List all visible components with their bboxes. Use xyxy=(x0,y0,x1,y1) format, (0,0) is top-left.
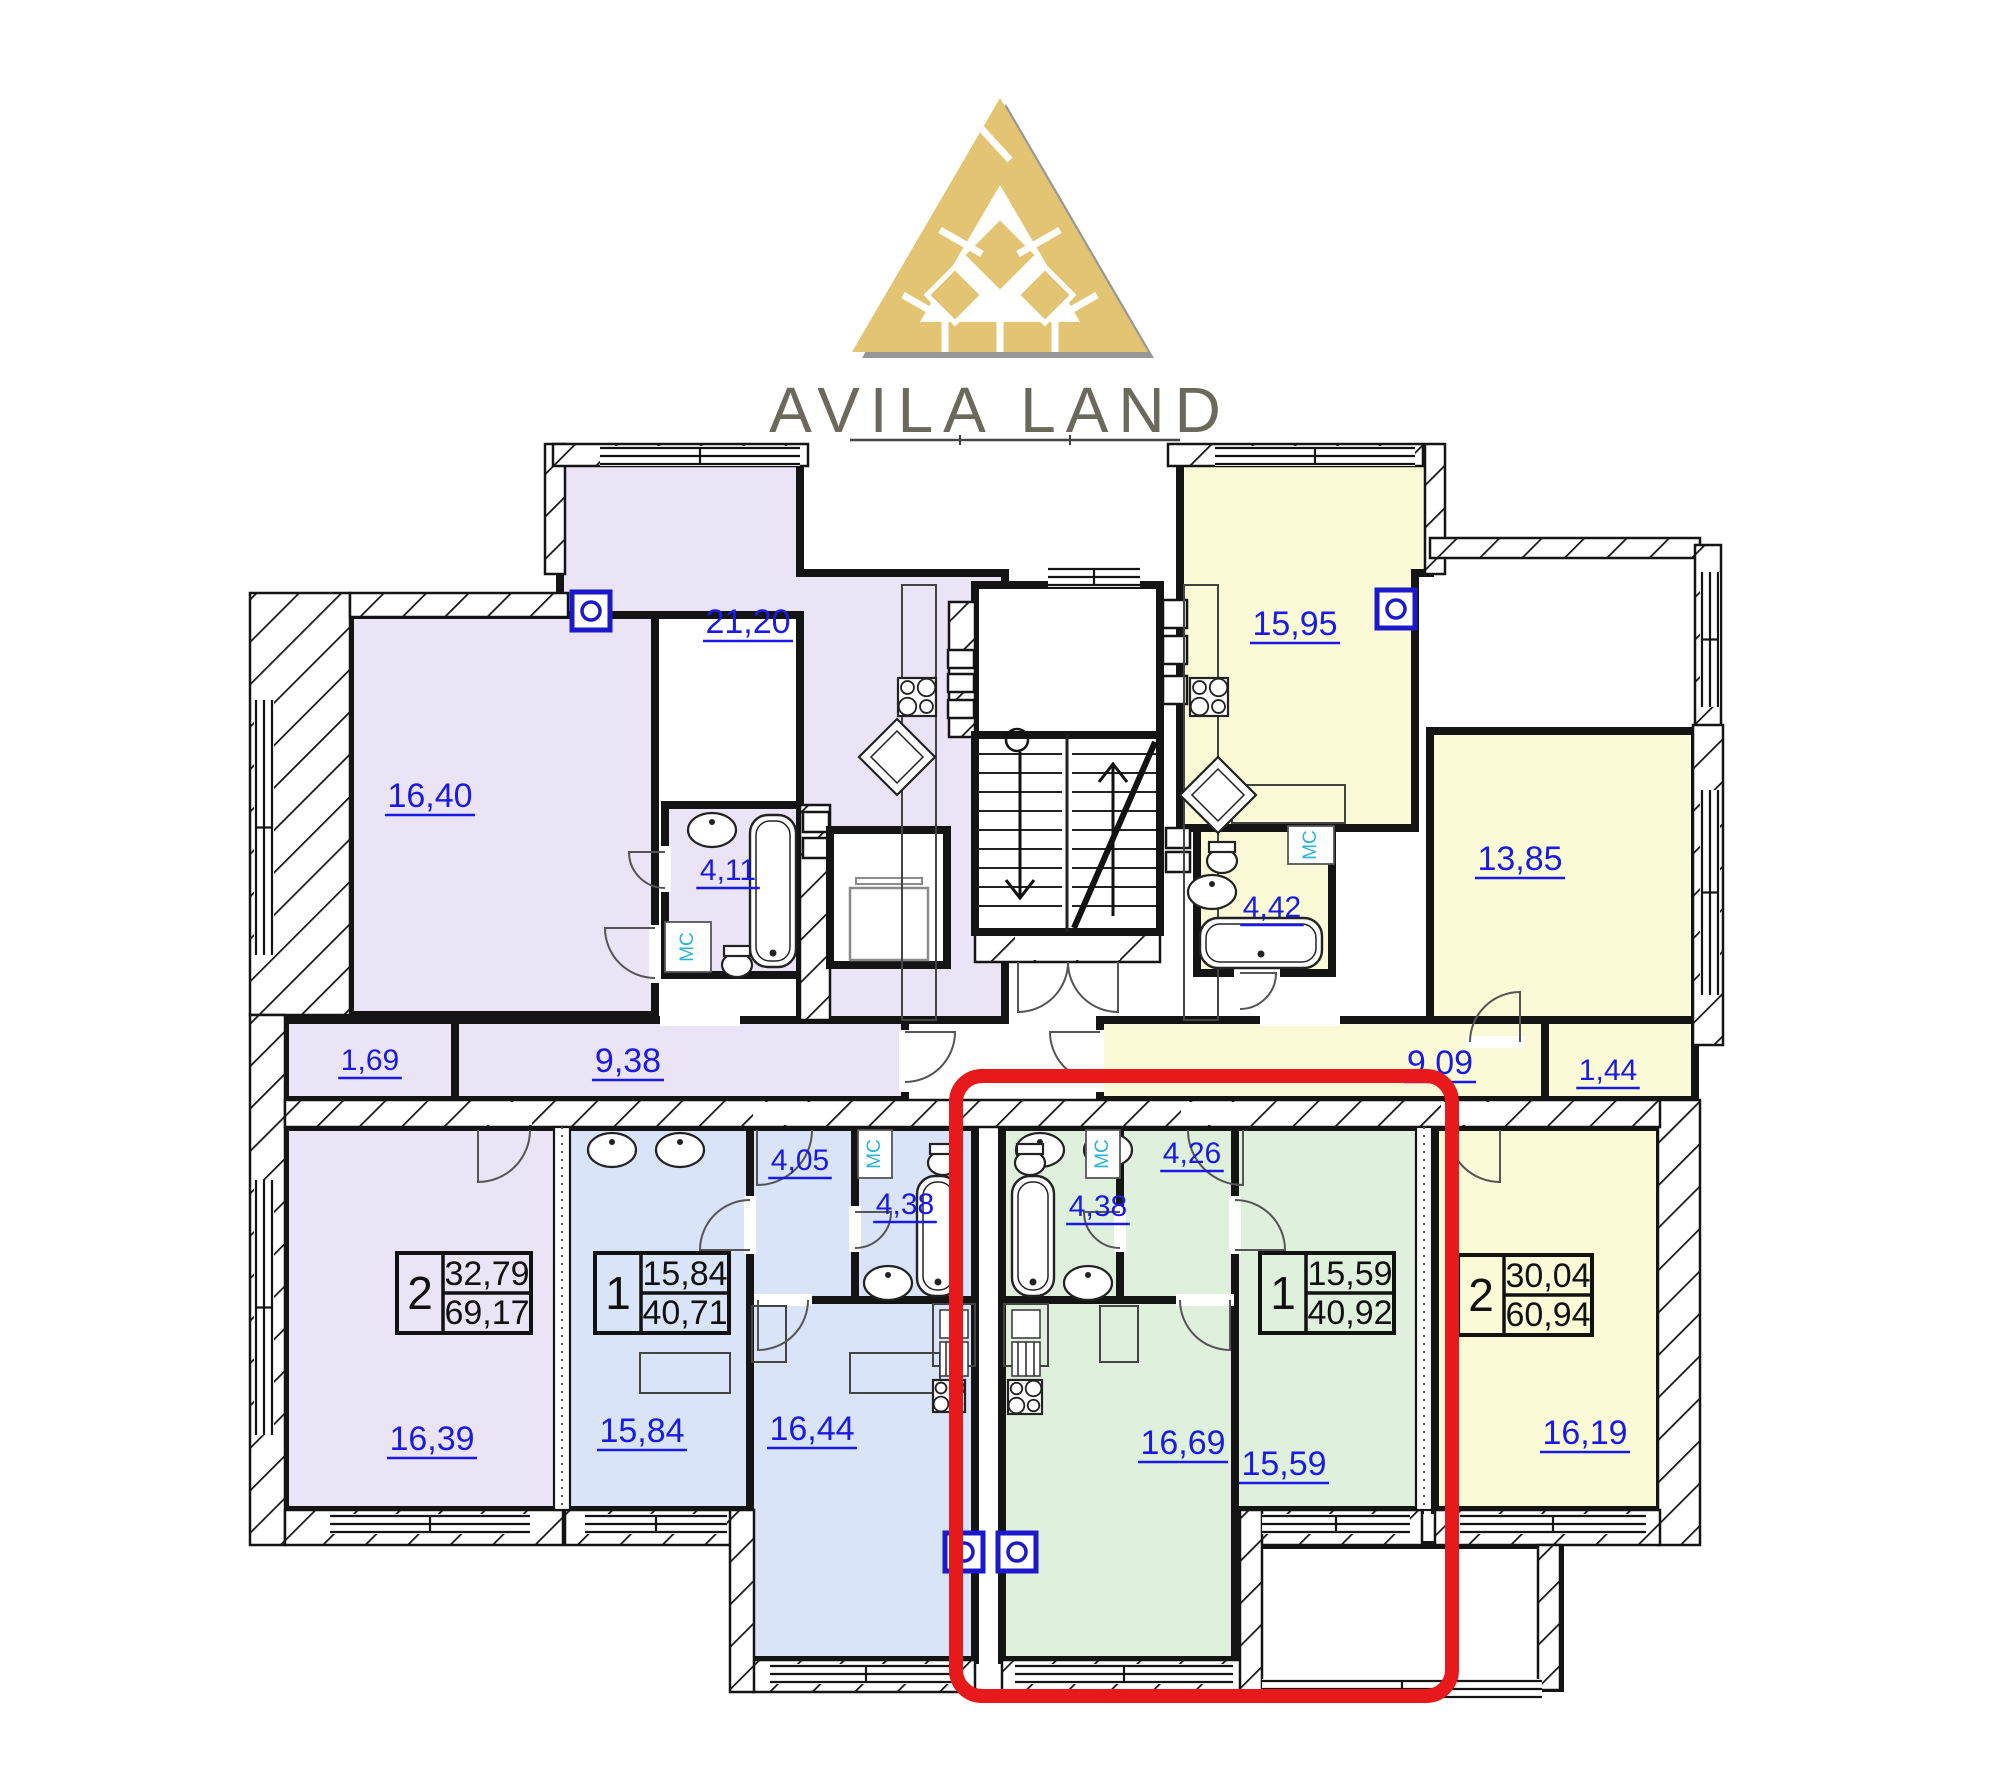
sink-icon xyxy=(656,1133,704,1167)
window xyxy=(1700,572,1720,707)
area-label: 4,38 xyxy=(873,1188,937,1222)
living-area: 32,79 xyxy=(444,1255,529,1293)
total-area: 69,17 xyxy=(444,1294,529,1332)
wall-hatched xyxy=(1430,538,1700,558)
door-gap xyxy=(1015,934,1120,960)
window xyxy=(1460,1514,1646,1534)
area-label-text: 16,44 xyxy=(769,1410,854,1448)
area-label-text: 4,05 xyxy=(771,1144,829,1177)
duct-shaft xyxy=(1166,828,1190,848)
area-label-text: 4,42 xyxy=(1243,891,1301,924)
total-area: 60,94 xyxy=(1505,1296,1590,1334)
room-count: 2 xyxy=(1468,1269,1494,1321)
brand-title: AVILA LAND xyxy=(769,374,1231,446)
party-wall-dotted xyxy=(554,1127,570,1510)
door-gap xyxy=(472,1102,532,1125)
sink-icon xyxy=(864,1266,912,1300)
window xyxy=(330,1514,530,1534)
area-label-text: 13,85 xyxy=(1477,840,1562,878)
area-label-text: 15,95 xyxy=(1252,605,1337,643)
wall-hatched xyxy=(1658,1100,1700,1545)
wall-hatched xyxy=(350,593,568,617)
area-label: 1,44 xyxy=(1576,1054,1640,1088)
door-gap xyxy=(649,925,661,983)
door-gap xyxy=(1260,1012,1340,1026)
toilet-icon xyxy=(1015,1144,1045,1175)
vent-box xyxy=(998,1533,1036,1571)
area-label: 21,20 xyxy=(703,603,793,641)
duct-shaft xyxy=(948,650,974,668)
area-label-text: 15,59 xyxy=(1241,1445,1326,1483)
door-gap xyxy=(1181,1102,1243,1125)
window xyxy=(1215,446,1415,466)
floor-plan: AVILA LAND МСМСМСМС21,2016,404,111,699,3… xyxy=(0,0,2000,1783)
room-count: 1 xyxy=(1270,1267,1296,1319)
living-area: 15,84 xyxy=(642,1255,727,1293)
sink-icon xyxy=(588,1133,636,1167)
washing-machine-label: МС xyxy=(864,1139,885,1169)
living-area: 30,04 xyxy=(1505,1257,1590,1295)
avila-logo-icon xyxy=(852,98,1154,358)
area-label: 13,85 xyxy=(1475,840,1565,878)
window xyxy=(770,1664,962,1684)
party-wall-dotted xyxy=(1416,1127,1432,1510)
washing-machine-box: МС xyxy=(1288,826,1334,864)
bathtub-icon xyxy=(750,815,796,967)
total-area: 40,92 xyxy=(1307,1294,1392,1332)
area-label-text: 16,40 xyxy=(387,777,472,815)
duct-shaft xyxy=(948,700,974,718)
area-label: 4,38 xyxy=(1066,1190,1130,1224)
area-label: 4,05 xyxy=(768,1144,832,1178)
area-label-text: 4,26 xyxy=(1163,1137,1221,1170)
elevator xyxy=(830,830,947,965)
sink-unit xyxy=(1012,1342,1040,1376)
stove-icon xyxy=(898,678,936,716)
wall-hatched xyxy=(730,1510,754,1692)
area-label-text: 15,84 xyxy=(599,1412,684,1450)
room-hall-9-38 xyxy=(455,1020,905,1100)
area-label-text: 21,20 xyxy=(705,603,790,641)
area-label: 16,44 xyxy=(767,1410,857,1448)
floor-plan-page: AVILA LAND МСМСМСМС21,2016,404,111,699,3… xyxy=(0,0,2000,1783)
window xyxy=(254,1180,274,1435)
living-area: 15,59 xyxy=(1307,1255,1392,1293)
door-gap xyxy=(1466,1036,1524,1048)
vent-box xyxy=(1377,590,1415,628)
area-label: 1,69 xyxy=(338,1044,402,1078)
window xyxy=(1700,790,1720,995)
door-swing xyxy=(1068,962,1118,1012)
sink-icon xyxy=(688,813,736,847)
room-terrace xyxy=(1250,1545,1560,1688)
window xyxy=(600,446,800,466)
washing-machine-label: МС xyxy=(1300,830,1321,860)
washing-machine-box: МС xyxy=(1086,1130,1120,1178)
door-gap xyxy=(1229,1196,1241,1254)
window xyxy=(585,1514,727,1534)
area-label: 16,40 xyxy=(385,777,475,815)
area-label-text: 4,38 xyxy=(876,1188,934,1221)
window xyxy=(1048,567,1140,587)
window xyxy=(1015,1664,1233,1684)
area-label-text: 16,69 xyxy=(1140,1424,1225,1462)
toilet-icon xyxy=(1207,842,1237,873)
area-label: 15,59 xyxy=(1239,1445,1329,1483)
door-swing xyxy=(1018,962,1068,1012)
stove-icon xyxy=(1008,1380,1042,1414)
area-label: 4,42 xyxy=(1240,891,1304,925)
area-label-text: 4,38 xyxy=(1069,1190,1127,1223)
window xyxy=(1262,1514,1410,1534)
room-count: 2 xyxy=(407,1267,433,1319)
room-vestibule xyxy=(975,585,1160,735)
door-gap xyxy=(660,1012,740,1026)
door-swing xyxy=(905,1032,955,1082)
wall-hatched xyxy=(1240,1510,1262,1692)
area-label: 4,26 xyxy=(1160,1137,1224,1171)
washing-machine-label: МС xyxy=(1092,1139,1113,1169)
duct-shaft xyxy=(948,674,974,692)
room-room-13-85 xyxy=(1430,731,1695,1042)
duct-shaft xyxy=(803,812,829,832)
area-label: 16,39 xyxy=(387,1420,477,1458)
toilet-icon xyxy=(722,946,752,977)
sink-icon xyxy=(1064,1266,1112,1300)
total-area: 40,71 xyxy=(642,1294,727,1332)
door-gap xyxy=(754,1294,812,1306)
area-label-text: 16,19 xyxy=(1542,1414,1627,1452)
area-label-text: 1,69 xyxy=(341,1044,399,1077)
room-count: 1 xyxy=(605,1267,631,1319)
area-label: 4,11 xyxy=(696,854,760,888)
room-hall-9-09 xyxy=(1100,1020,1545,1100)
area-label-text: 16,39 xyxy=(389,1420,474,1458)
bathtub-icon xyxy=(1012,1176,1054,1296)
sink-icon xyxy=(1188,875,1236,909)
area-label: 16,19 xyxy=(1540,1414,1630,1452)
sink-unit xyxy=(1012,1310,1040,1338)
duct-shaft xyxy=(1166,852,1190,872)
area-label-text: 9,38 xyxy=(595,1042,661,1080)
area-label-text: 1,44 xyxy=(1579,1054,1637,1087)
area-label-text: 4,11 xyxy=(700,854,756,887)
area-label: 15,95 xyxy=(1250,605,1340,643)
area-label: 9,38 xyxy=(592,1042,664,1080)
window xyxy=(254,700,274,955)
area-label: 16,69 xyxy=(1138,1424,1228,1462)
staircase xyxy=(975,729,1160,932)
stove-icon xyxy=(1190,678,1228,716)
washing-machine-box: МС xyxy=(858,1130,892,1178)
vent-box xyxy=(572,592,610,630)
washing-machine-box: МС xyxy=(665,922,711,972)
door-gap xyxy=(744,1196,756,1254)
wall-hatched xyxy=(1538,1545,1560,1690)
door-gap xyxy=(753,1102,815,1125)
duct-shaft xyxy=(803,838,829,858)
door-gap xyxy=(1176,1294,1234,1306)
area-label: 15,84 xyxy=(597,1412,687,1450)
washing-machine-label: МС xyxy=(677,932,698,962)
